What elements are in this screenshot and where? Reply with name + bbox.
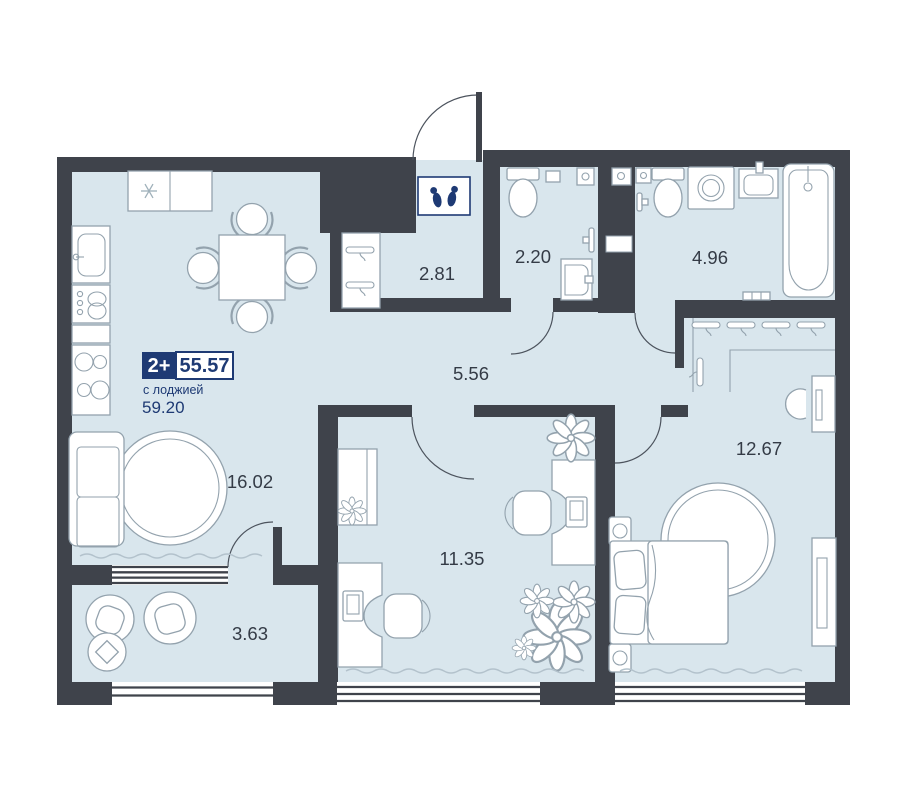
badge-total-area: 55.57 [179,355,229,377]
balcony-window [112,565,228,585]
vanity-desk [812,376,835,432]
room-area-label-wc: 2.20 [515,246,551,267]
room-area-label-corridor: 5.56 [453,363,489,384]
pillow [613,550,646,590]
vent-grille [743,292,770,300]
sofa [69,432,124,547]
nightstand [609,644,631,672]
living-rug [113,431,227,545]
floorplan-page: 2+ 55.57 с лоджией 59.20 16.02 [0,0,907,800]
plant [338,497,366,525]
room-area-label-hallway: 2.81 [419,263,455,284]
pillow [614,595,647,635]
kitchen-sink [72,226,110,283]
badge-loggia-note: с лоджией [143,383,203,397]
office-window [337,682,540,705]
badge-area-with-loggia: 59.20 [142,398,185,417]
plant [512,636,536,660]
blanket [648,541,728,644]
hall-wardrobe [342,233,380,308]
toilet [507,168,539,217]
toilet [652,168,684,217]
armchair [144,592,196,644]
washing-machine [688,167,734,209]
wc-sink [561,259,593,300]
kitchen-counter [72,285,110,343]
kitchen-stove [72,345,110,415]
plant [520,584,554,618]
refrigerator [128,171,212,211]
plant [547,414,595,462]
slippers-icon [418,177,470,215]
bedroom-window [615,682,805,705]
room-area-label-bathroom: 4.96 [692,247,728,268]
dining-table [219,235,285,300]
floorplan-drawing: 2+ 55.57 с лоджией 59.20 16.02 [0,0,907,800]
room-area-label-kitchen-living: 16.02 [227,471,273,492]
room-area-label-office: 11.35 [440,548,485,569]
badge-rooms-count: 2+ [148,355,171,377]
entrance-door [413,92,482,162]
plant [553,581,595,623]
dresser [812,538,836,646]
loggia-window [112,682,273,705]
bathtub [783,164,834,297]
room-area-label-bedroom: 12.67 [736,438,782,459]
room-area-label-loggia: 3.63 [232,623,268,644]
coffee-table [88,633,126,671]
